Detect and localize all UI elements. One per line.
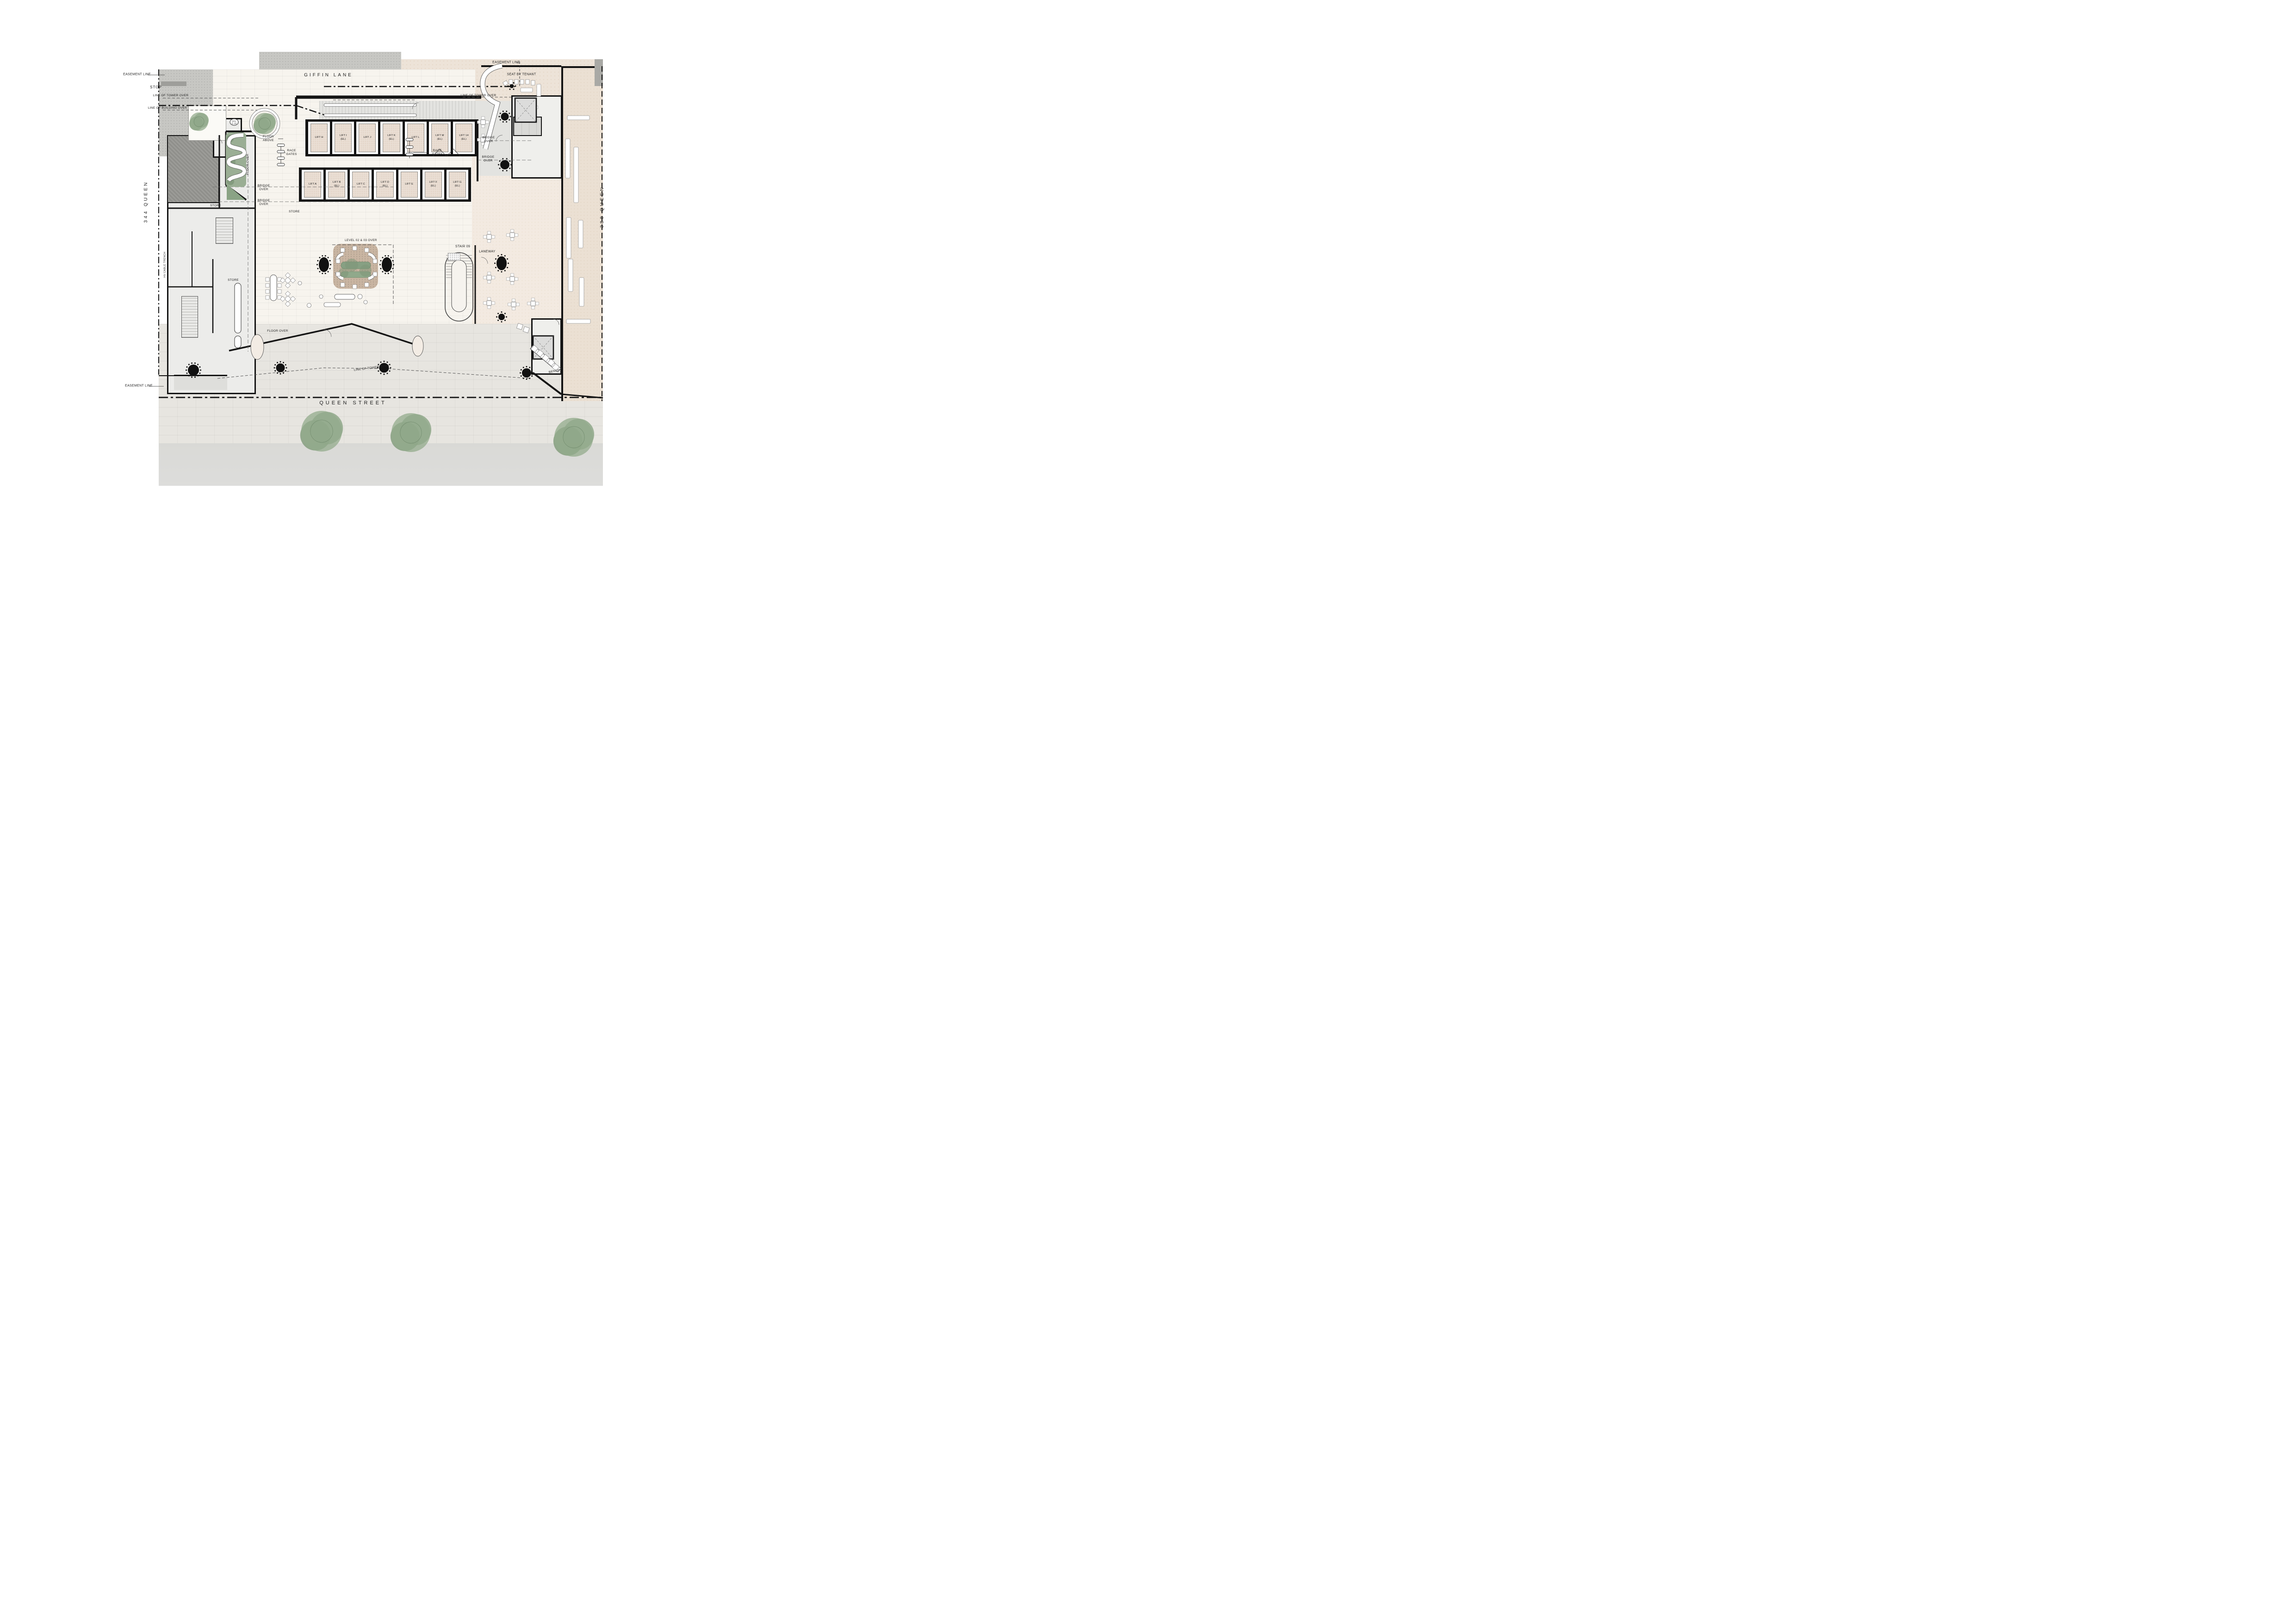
label-level-02-03: LEVEL 02 & 03 OVER: [345, 239, 377, 242]
label-line-tower-top-right: LINE OF TOWER OVER: [461, 94, 496, 98]
toilets-block: [513, 117, 542, 136]
label-line-building-top-left: LINE OF BUILDING OVER: [148, 106, 187, 110]
lift-cell: LIFT B (EL): [326, 170, 348, 199]
lift-label: LIFT D (EL): [381, 181, 389, 188]
lift-cell: LIFT H: [308, 122, 330, 154]
label-line-tower-top-center: LINE OF TOWER OVER: [355, 96, 391, 100]
lift-cell: LIFT L: [405, 122, 427, 154]
label-stair-09: STAIR 09: [455, 245, 470, 249]
lift-cell: LIFT C: [350, 170, 372, 199]
lift-label: LIFT K (EL): [387, 134, 396, 142]
label-store-south: STORE: [228, 279, 239, 282]
right-tenancy: [561, 66, 603, 401]
lift-label: LIFT J: [364, 136, 372, 140]
lift-cell: LIFT A: [302, 170, 323, 199]
lift-cell: LIFT G (EL): [447, 170, 468, 199]
lift-cell: LIFT E: [398, 170, 420, 199]
lift-label: LIFT M (EL): [435, 134, 444, 142]
tree-courtyard: [188, 105, 226, 141]
right-core-block: [511, 95, 562, 179]
lift-cell: LIFT 14 (EL): [453, 122, 475, 154]
lift-label: LIFT E: [405, 183, 413, 186]
road-surface: [159, 443, 603, 486]
lift-cell: LIFT I (EL): [332, 122, 354, 154]
lift-label: LIFT 14 (EL): [459, 134, 468, 142]
label-bridge-over-east-1: BRIDGE OVER: [483, 136, 495, 143]
label-queen-street: QUEEN STREET: [319, 400, 387, 407]
lift-label: LIFT L: [412, 136, 420, 140]
lift-label: LIFT I (EL): [340, 134, 347, 142]
lift-cell: LIFT D (EL): [374, 170, 396, 199]
lift-label: LIFT H: [315, 136, 323, 140]
label-giffin-lane: GIFFIN LANE: [304, 73, 353, 79]
queen-street-paving: [159, 407, 603, 443]
plan-sheet: LIFT HLIFT I (EL)LIFT JLIFT K (EL)LIFT L…: [0, 0, 765, 541]
lift-label: LIFT C: [357, 183, 365, 186]
label-queen-388: 388 QUEEN: [600, 186, 606, 228]
right-lower-block: [531, 318, 562, 375]
neighbour-building-hatched: [167, 135, 219, 203]
label-bridge-over-west-1: BRIDGE OVER: [258, 184, 270, 192]
lift-label: LIFT B (EL): [333, 181, 341, 188]
label-line-tower-top-left: LINE OF TOWER OVER: [153, 94, 189, 98]
lift-label: LIFT A: [309, 183, 316, 186]
label-floor-above: FLOOR ABOVE: [263, 135, 274, 142]
label-store-west: STORE: [210, 204, 221, 208]
label-seat-by-tenant: SEAT BY TENANT: [507, 73, 536, 77]
label-laneway: LANEWAY: [479, 250, 496, 254]
label-store-core: STORE: [289, 210, 300, 214]
label-easement-top-right: EASEMENT LINE: [492, 61, 520, 65]
label-floor-over-entry: FLOOR OVER: [267, 329, 288, 333]
lift-label: LIFT F (EL): [429, 181, 437, 188]
top-right-neighbour-wall: [595, 59, 603, 86]
escalator-zone: [319, 101, 479, 119]
bof-stair-2: [181, 296, 198, 338]
lift-cell: LIFT F (EL): [422, 170, 444, 199]
lift-cell: LIFT J: [356, 122, 378, 154]
lift-bank-south: LIFT ALIFT B (EL)LIFT CLIFT D (EL)LIFT E…: [299, 167, 471, 202]
label-stop: STOP: [150, 85, 162, 90]
label-race-gates-left: RACE GATES: [286, 149, 297, 156]
label-easement-top-left: EASEMENT LINE: [123, 73, 151, 77]
label-easement-bottom-left: EASEMENT LINE: [125, 384, 153, 389]
label-queen-344: 344 QUEEN: [143, 180, 149, 223]
lift-bank-north: LIFT HLIFT I (EL)LIFT JLIFT K (EL)LIFT L…: [305, 119, 478, 156]
lift-cell: LIFT K (EL): [380, 122, 402, 154]
label-hv-cable-trench: HV CABLE TRENCH: [164, 252, 167, 278]
central-planter: [333, 244, 378, 289]
south-canopy: [174, 375, 227, 390]
label-race-gates-right: RACE GATES: [432, 149, 442, 156]
label-bridge-over-west-2: BRIDGE OVER: [258, 199, 270, 206]
lift-label: LIFT G (EL): [453, 181, 461, 188]
label-bridge-over-east-2: BRIDGE OVER: [482, 155, 495, 163]
bof-stair-1: [216, 217, 233, 244]
label-floor-over-west: FLOOR OVER: [246, 154, 250, 175]
